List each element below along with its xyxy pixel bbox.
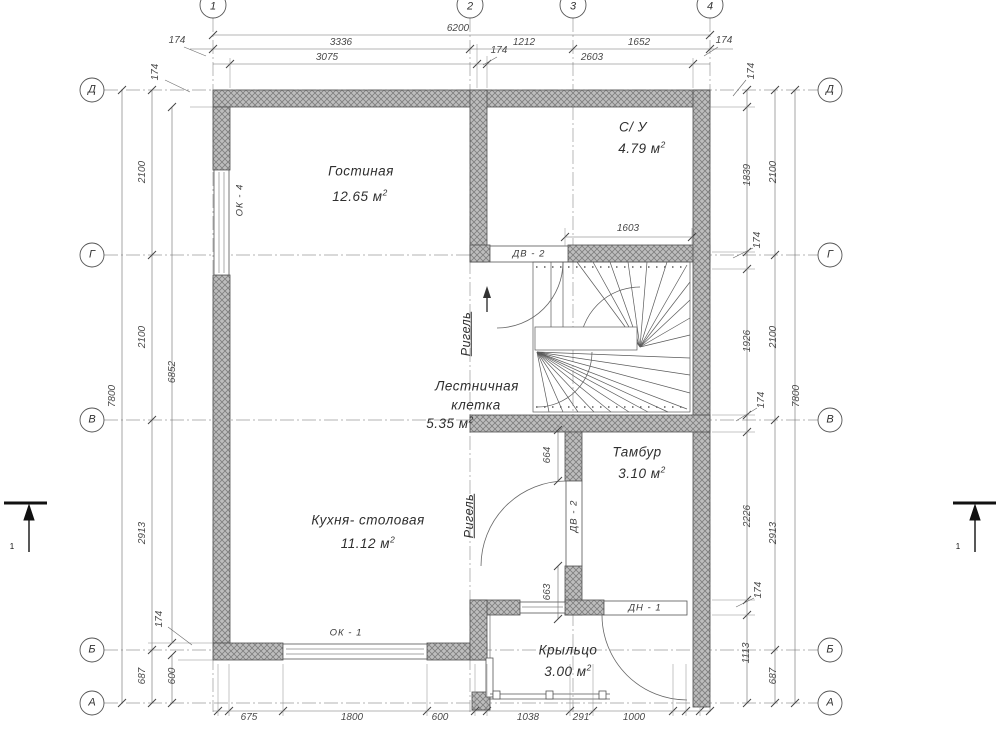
- label-dims-d2603: 2603: [581, 53, 603, 63]
- label-dims-d687: 687: [138, 668, 148, 685]
- label-text: 2100: [137, 161, 148, 183]
- label-dims-d663: 663: [543, 584, 553, 601]
- label-axes-columns-1: 2: [467, 2, 473, 13]
- label-text: 1000: [623, 712, 645, 723]
- label-text: С/ У: [619, 119, 647, 134]
- label-text: Д: [826, 84, 834, 96]
- label-text: 7800: [791, 385, 802, 407]
- label-dims-d2100: 2100: [138, 326, 148, 348]
- plan-geometry: [0, 0, 1000, 737]
- label-dims-d6852: 6852: [168, 361, 178, 383]
- floor-plan-drawing: 1234ДГВБАДГВБАГостиная12.65 м2С/ У4.79 м…: [0, 0, 1000, 737]
- label-rooms-4-area: 3.10 м2: [618, 466, 665, 481]
- label-openings-dv2: ДВ - 2: [569, 500, 579, 533]
- label-text: 2603: [581, 52, 603, 63]
- label-text: Гостиная: [328, 163, 394, 178]
- label-dims-d6200: 6200: [447, 24, 469, 34]
- label-section-label: 1: [956, 543, 960, 551]
- label-dims-d600: 600: [432, 713, 449, 723]
- label-axes-rows-1: Г: [827, 250, 833, 261]
- label-text: ДВ - 2: [568, 500, 579, 533]
- label-dims-d1839: 1839: [743, 164, 753, 186]
- label-openings-dn1: ДН - 1: [628, 603, 661, 613]
- label-text: Ригель: [459, 312, 473, 356]
- label-text: 174: [716, 35, 733, 46]
- label-rooms-5-name: Крыльцо: [539, 643, 598, 657]
- label-text: 3336: [330, 37, 352, 48]
- label-dims-d687: 687: [769, 668, 779, 685]
- label-dims-d1038: 1038: [517, 713, 539, 723]
- label-dims-d174: 174: [753, 232, 763, 249]
- label-text: 1: [10, 542, 14, 551]
- label-axes-rows-1: Г: [89, 250, 95, 261]
- label-text: 600: [432, 712, 449, 723]
- label-text: 1038: [517, 712, 539, 723]
- label-beam-label: Ригель: [463, 494, 476, 538]
- label-text: ДВ - 2: [513, 248, 546, 259]
- label-text: Д: [88, 84, 96, 96]
- label-text: 2: [467, 1, 473, 13]
- label-text: Лестничная: [435, 378, 519, 393]
- label-dims-d174: 174: [151, 64, 161, 81]
- label-axes-columns-2: 3: [570, 2, 576, 13]
- label-axes-rows-4: А: [826, 698, 833, 709]
- label-text: 1800: [341, 712, 363, 723]
- label-text: 2913: [768, 522, 779, 544]
- label-text: 174: [756, 392, 767, 409]
- label-dims-d2913: 2913: [769, 522, 779, 544]
- label-dims-d174: 174: [169, 36, 186, 46]
- label-rooms-2-line2: клетка: [451, 398, 500, 412]
- label-dims-d174: 174: [757, 392, 767, 409]
- label-dims-d7800: 7800: [108, 385, 118, 407]
- label-text: 2100: [137, 326, 148, 348]
- label-dims-d1212: 1212: [513, 38, 535, 48]
- label-text: 3.00 м: [544, 664, 586, 679]
- label-text: 174: [491, 45, 508, 56]
- superscript: 2: [390, 535, 395, 545]
- label-axes-rows-0: Д: [826, 85, 834, 96]
- label-openings-ok4: ОК - 4: [235, 184, 245, 217]
- label-dims-d3336: 3336: [330, 38, 352, 48]
- label-text: 687: [768, 668, 779, 685]
- label-text: 11.12 м: [341, 536, 390, 551]
- label-text: 174: [746, 63, 757, 80]
- label-axes-rows-4: А: [88, 698, 95, 709]
- label-text: ОК - 4: [234, 184, 245, 217]
- label-axes-rows-3: Б: [88, 645, 95, 656]
- label-dims-d1000: 1000: [623, 713, 645, 723]
- label-dims-d3075: 3075: [316, 53, 338, 63]
- label-text: 291: [573, 712, 590, 723]
- label-axes-rows-3: Б: [826, 645, 833, 656]
- label-axes-rows-2: В: [826, 415, 833, 426]
- label-rooms-2-area: 5.35 м2: [426, 416, 473, 431]
- label-dims-d1800: 1800: [341, 713, 363, 723]
- label-text: Кухня- столовая: [311, 512, 424, 527]
- label-rooms-1-name: С/ У: [619, 120, 647, 134]
- label-text: 174: [154, 611, 165, 628]
- stair-direction-arrow: [483, 286, 491, 312]
- label-text: 1: [956, 542, 960, 551]
- label-dims-d174: 174: [754, 582, 764, 599]
- label-text: 174: [169, 35, 186, 46]
- label-text: Крыльцо: [539, 642, 598, 657]
- label-text: В: [826, 414, 833, 426]
- label-text: 3.10 м: [618, 466, 660, 481]
- label-dims-d2100: 2100: [769, 161, 779, 183]
- label-dims-d2100: 2100: [138, 161, 148, 183]
- stair-lower-flight: [537, 352, 690, 412]
- label-text: 4: [707, 1, 713, 13]
- label-dims-d1652: 1652: [628, 38, 650, 48]
- label-axes-rows-0: Д: [88, 85, 96, 96]
- label-text: 1839: [742, 164, 753, 186]
- label-text: клетка: [451, 397, 500, 412]
- label-text: 664: [542, 447, 553, 464]
- label-text: 174: [150, 64, 161, 81]
- label-text: 1926: [742, 330, 753, 352]
- label-text: 174: [752, 232, 763, 249]
- label-dims-d664: 664: [543, 447, 553, 464]
- label-beam-label: Ригель: [460, 312, 473, 356]
- superscript: 2: [587, 663, 592, 673]
- label-text: Ригель: [462, 494, 476, 538]
- label-dims-d7800: 7800: [792, 385, 802, 407]
- label-text: 1603: [617, 223, 639, 234]
- label-axes-rows-2: В: [88, 415, 95, 426]
- label-text: 5.35 м: [426, 416, 468, 431]
- label-dims-d2226: 2226: [743, 505, 753, 527]
- label-dims-d291: 291: [573, 713, 590, 723]
- label-dims-d174: 174: [747, 63, 757, 80]
- label-text: 675: [241, 712, 258, 723]
- label-text: 4.79 м: [618, 141, 660, 156]
- superscript: 2: [661, 140, 666, 150]
- label-axes-columns-0: 1: [210, 2, 216, 13]
- superscript: 2: [469, 415, 474, 425]
- section-markers: [4, 503, 996, 552]
- label-text: 1113: [741, 643, 752, 664]
- label-openings-ok1: ОК - 1: [330, 628, 363, 638]
- label-text: 6852: [167, 361, 178, 383]
- label-text: 12.65 м: [332, 189, 382, 204]
- label-text: Г: [89, 249, 95, 261]
- label-text: 174: [753, 582, 764, 599]
- window-ok4: [214, 170, 229, 275]
- label-rooms-0-name: Гостиная: [328, 164, 394, 178]
- label-rooms-3-name: Кухня- столовая: [311, 513, 424, 527]
- label-rooms-1-area: 4.79 м2: [618, 141, 665, 156]
- label-rooms-2-line1: Лестничная: [435, 379, 519, 393]
- label-dims-d2913: 2913: [138, 522, 148, 544]
- label-text: А: [826, 697, 833, 709]
- label-text: А: [88, 697, 95, 709]
- label-text: Б: [826, 644, 833, 656]
- label-dims-d174: 174: [716, 36, 733, 46]
- label-text: 1: [210, 1, 216, 13]
- label-text: ОК - 1: [330, 627, 363, 638]
- label-rooms-3-area: 11.12 м2: [341, 536, 395, 551]
- label-rooms-0-area: 12.65 м2: [332, 189, 387, 204]
- label-dims-d1926: 1926: [743, 330, 753, 352]
- label-text: 687: [137, 668, 148, 685]
- window-ok1: [283, 644, 427, 659]
- label-text: 7800: [107, 385, 118, 407]
- axis-grid-lines: [104, 18, 818, 712]
- label-section-label: 1: [10, 543, 14, 551]
- label-text: 2100: [768, 326, 779, 348]
- label-text: 3: [570, 1, 576, 13]
- superscript: 2: [383, 188, 388, 198]
- label-dims-d1113: 1113: [742, 643, 752, 664]
- stair-landing: [535, 327, 637, 350]
- label-text: Г: [827, 249, 833, 261]
- label-dims-d600: 600: [168, 668, 178, 685]
- label-openings-dv2: ДВ - 2: [513, 249, 546, 259]
- label-axes-columns-3: 4: [707, 2, 713, 13]
- label-text: 2226: [742, 505, 753, 527]
- label-text: 2100: [768, 161, 779, 183]
- label-dims-d174: 174: [491, 46, 508, 56]
- label-text: 1212: [513, 37, 535, 48]
- label-text: 6200: [447, 23, 469, 34]
- label-dims-d675: 675: [241, 713, 258, 723]
- label-dims-d2100: 2100: [769, 326, 779, 348]
- label-text: 3075: [316, 52, 338, 63]
- label-text: 2913: [137, 522, 148, 544]
- label-text: В: [88, 414, 95, 426]
- label-dims-d174: 174: [155, 611, 165, 628]
- label-text: 663: [542, 584, 553, 601]
- label-text: ДН - 1: [628, 602, 661, 613]
- label-text: Б: [88, 644, 95, 656]
- label-text: 600: [167, 668, 178, 685]
- label-rooms-5-area: 3.00 м2: [544, 664, 591, 679]
- label-dims-d1603: 1603: [617, 224, 639, 234]
- label-text: 1652: [628, 37, 650, 48]
- label-rooms-4-name: Тамбур: [612, 445, 661, 459]
- superscript: 2: [661, 465, 666, 475]
- label-text: Тамбур: [612, 444, 661, 459]
